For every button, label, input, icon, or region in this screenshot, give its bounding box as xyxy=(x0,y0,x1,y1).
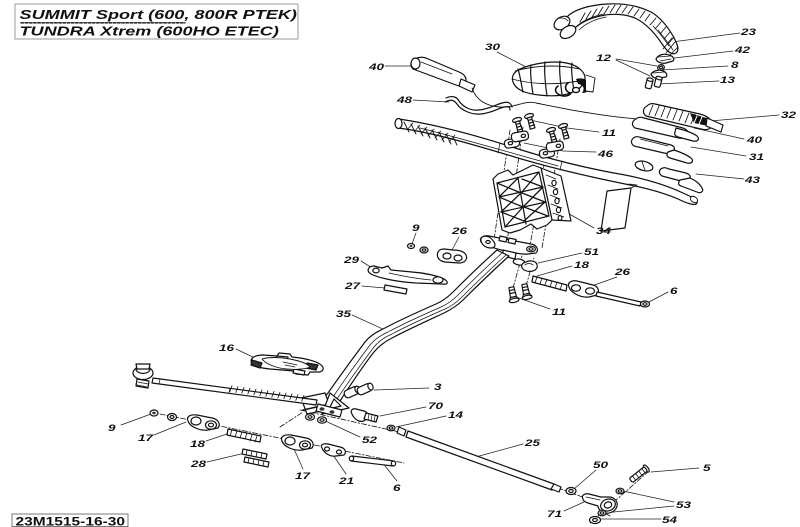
svg-text:TUNDRA Xtrem (600HO ETEC): TUNDRA Xtrem (600HO ETEC) xyxy=(20,25,279,39)
svg-text:23: 23 xyxy=(740,27,757,38)
svg-text:53: 53 xyxy=(676,500,692,511)
svg-text:26: 26 xyxy=(451,226,468,237)
svg-text:51: 51 xyxy=(584,247,599,258)
svg-text:27: 27 xyxy=(344,281,361,292)
svg-text:48: 48 xyxy=(396,95,413,106)
svg-text:25: 25 xyxy=(524,438,541,449)
svg-text:30: 30 xyxy=(485,42,501,53)
svg-text:35: 35 xyxy=(336,309,352,320)
svg-text:71: 71 xyxy=(547,509,562,520)
svg-text:17: 17 xyxy=(138,433,154,444)
svg-text:9: 9 xyxy=(108,423,116,434)
svg-text:42: 42 xyxy=(734,45,751,56)
svg-text:40: 40 xyxy=(368,62,385,73)
svg-text:29: 29 xyxy=(343,255,360,266)
svg-text:11: 11 xyxy=(602,128,616,139)
svg-text:8: 8 xyxy=(731,60,739,71)
svg-text:3: 3 xyxy=(434,382,442,393)
svg-text:SUMMIT Sport (600, 800R PTEK): SUMMIT Sport (600, 800R PTEK) xyxy=(20,9,297,23)
svg-text:11: 11 xyxy=(552,307,566,318)
svg-text:31: 31 xyxy=(749,152,764,163)
svg-text:40: 40 xyxy=(746,135,763,146)
svg-text:23M1515-16-30: 23M1515-16-30 xyxy=(16,515,126,527)
svg-text:14: 14 xyxy=(448,410,464,421)
svg-text:9: 9 xyxy=(412,223,420,234)
svg-text:6: 6 xyxy=(393,483,401,494)
svg-text:46: 46 xyxy=(597,149,614,160)
svg-text:26: 26 xyxy=(614,267,631,278)
svg-text:54: 54 xyxy=(662,515,678,526)
svg-text:70: 70 xyxy=(428,401,444,412)
svg-text:50: 50 xyxy=(593,460,609,471)
svg-text:6: 6 xyxy=(670,286,678,297)
svg-text:13: 13 xyxy=(720,75,736,86)
svg-text:28: 28 xyxy=(190,459,207,470)
svg-text:16: 16 xyxy=(219,343,235,354)
svg-text:52: 52 xyxy=(362,435,378,446)
svg-text:5: 5 xyxy=(703,463,711,474)
svg-text:18: 18 xyxy=(190,439,206,450)
svg-text:32: 32 xyxy=(781,110,797,121)
svg-text:34: 34 xyxy=(596,226,612,237)
svg-text:17: 17 xyxy=(295,471,311,482)
svg-text:12: 12 xyxy=(596,53,612,64)
svg-text:43: 43 xyxy=(744,175,761,186)
svg-text:21: 21 xyxy=(338,476,354,487)
svg-text:18: 18 xyxy=(574,260,590,271)
